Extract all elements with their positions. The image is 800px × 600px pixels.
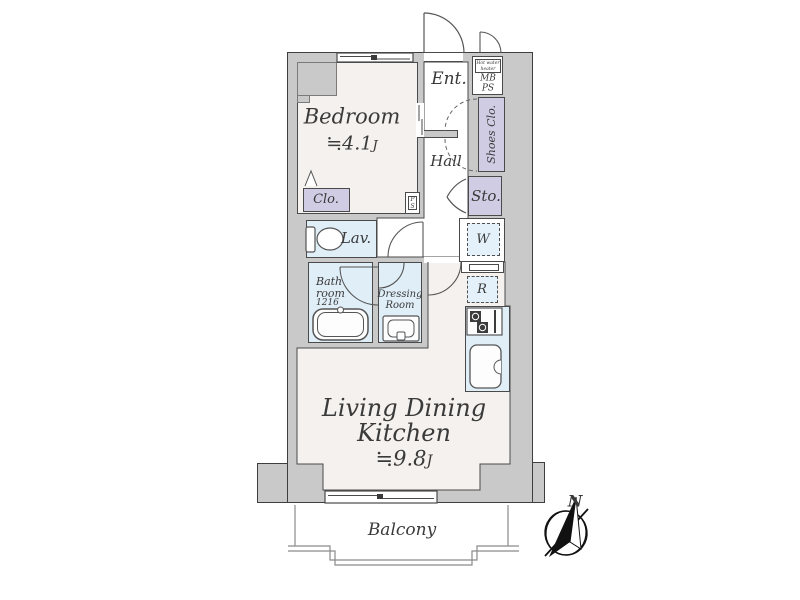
meter-box-door-swing xyxy=(480,32,501,53)
ldk-size: ≒9.8J xyxy=(376,448,433,471)
lavatory-label: Lav. xyxy=(341,230,371,246)
storage-label: Sto. xyxy=(471,188,501,204)
kitchen-floor xyxy=(465,306,510,392)
hall-label: Hall xyxy=(430,153,462,169)
balcony-label: Balcony xyxy=(368,521,436,539)
bedroom-size-value: ≒4.1 xyxy=(326,133,372,155)
entrance-label: Ent. xyxy=(431,70,467,88)
shoes-closet-label: Shoes Clo. xyxy=(485,105,498,164)
refrigerator-label: R xyxy=(477,283,487,297)
bedroom-size: ≒4.1J xyxy=(326,134,377,155)
entrance-threshold xyxy=(424,52,463,62)
shoes-closet: Shoes Clo. xyxy=(478,97,505,172)
compass-north-label: N xyxy=(568,492,583,509)
ldk-doorway xyxy=(424,257,461,263)
washer-label: W xyxy=(476,233,489,247)
dressing-room-label: Dressing Room xyxy=(377,290,422,312)
ldk-size-value: ≒9.8 xyxy=(376,447,427,471)
dressing-line2: Room xyxy=(377,301,422,312)
floor-plan: Hot water heater Shoes Clo. P S xyxy=(0,0,800,600)
water-heater-box: Hot water heater xyxy=(475,59,501,73)
pipe-space-inner: P S xyxy=(408,196,417,210)
bedroom-corner-pillar xyxy=(297,62,337,96)
kitchen-counter-inner xyxy=(469,264,499,271)
pipe-space-s: S xyxy=(409,204,416,211)
meter-box-label: MB PS xyxy=(480,74,496,93)
entrance-door-swing xyxy=(424,13,464,53)
closet-label: Clo. xyxy=(313,193,339,207)
water-heater-line2: heater xyxy=(476,67,500,73)
bedroom-size-unit: J xyxy=(372,139,377,154)
meter-box-line2: PS xyxy=(480,84,496,94)
bedroom-label: Bedroom xyxy=(304,106,401,129)
bedroom-corner-step xyxy=(297,95,310,103)
water-heater-line1: Hot water xyxy=(476,61,500,67)
bathroom-label: Bath room 1216 xyxy=(316,276,345,309)
bathroom-size-code: 1216 xyxy=(316,299,345,308)
entrance-hall-wall xyxy=(418,130,458,138)
ldk-size-unit: J xyxy=(427,453,433,470)
bathroom-line1: Bath xyxy=(316,276,345,288)
ldk-label-line2: Kitchen xyxy=(357,421,451,447)
